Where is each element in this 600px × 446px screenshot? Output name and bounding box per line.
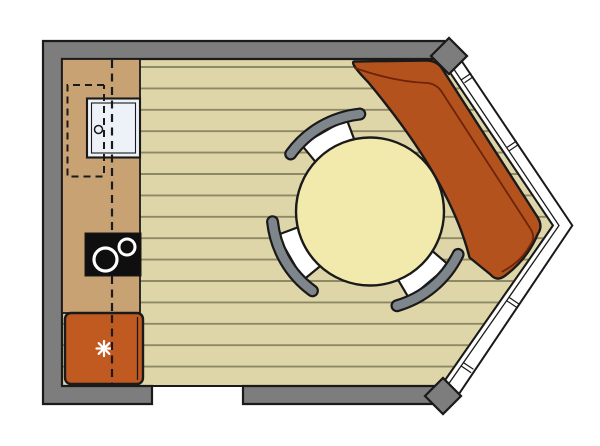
dining-table (296, 138, 444, 286)
floor-plan (0, 0, 600, 446)
snowflake-icon (97, 341, 112, 356)
cooktop (85, 233, 141, 276)
floor-plan-canvas (0, 0, 600, 446)
wall-bottom-right-segment (243, 386, 444, 404)
faucet (95, 126, 103, 134)
refrigerator (65, 313, 143, 384)
sink (87, 99, 140, 158)
door-opening (152, 386, 243, 404)
